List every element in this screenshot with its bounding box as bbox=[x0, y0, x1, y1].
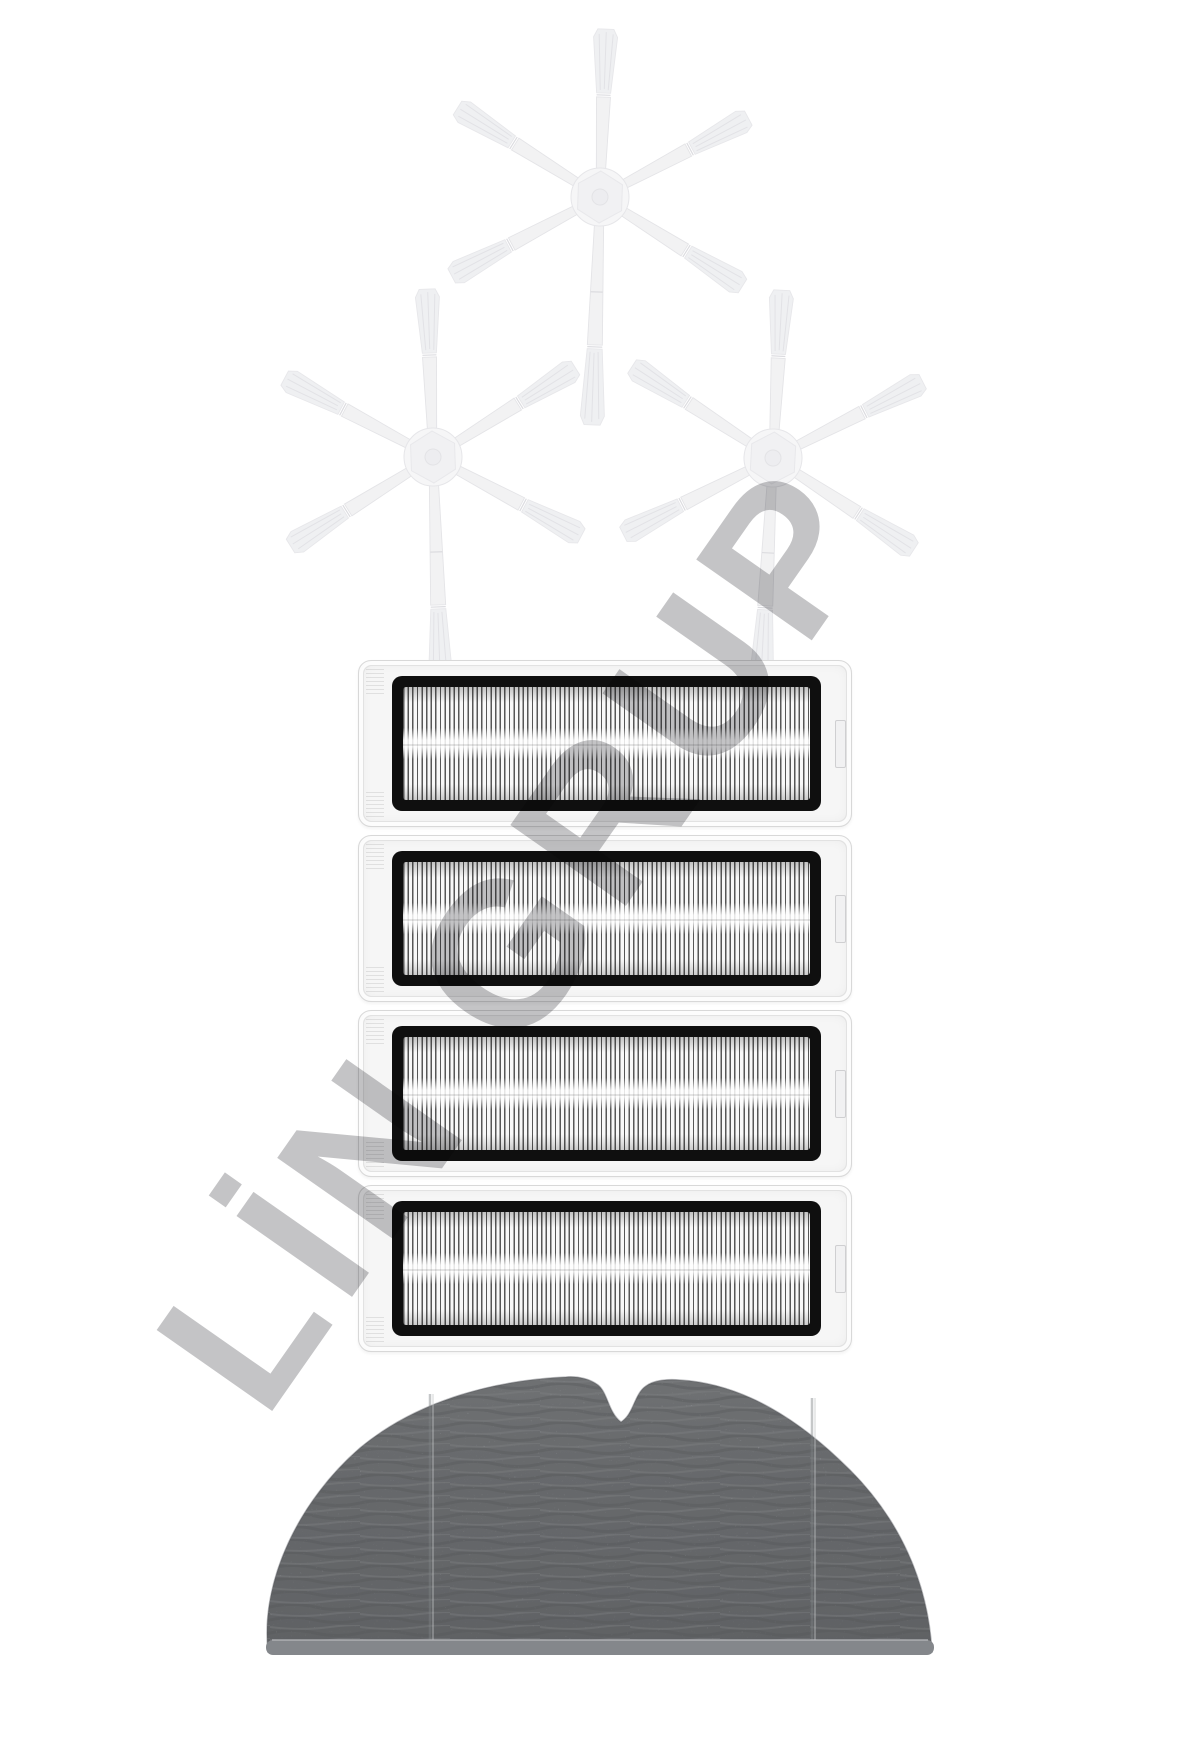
hepa-filter-2 bbox=[358, 835, 852, 1002]
filter-pleats bbox=[403, 687, 810, 800]
filter-pleats bbox=[403, 1212, 810, 1325]
filter-pleats bbox=[403, 1037, 810, 1150]
hepa-filter-3 bbox=[358, 1010, 852, 1177]
filter-black-frame bbox=[392, 676, 821, 811]
filter-black-frame bbox=[392, 1201, 821, 1336]
filter-ridge-top-left bbox=[366, 1194, 384, 1220]
filter-ridge-bottom-left bbox=[366, 967, 384, 993]
filter-clip-tab bbox=[835, 1070, 846, 1118]
filter-ridge-bottom-left bbox=[366, 792, 384, 818]
filter-ridge-bottom-left bbox=[366, 1142, 384, 1168]
pleat-midline bbox=[403, 1094, 810, 1096]
filter-black-frame bbox=[392, 851, 821, 986]
filter-pleats bbox=[403, 862, 810, 975]
filter-clip-tab bbox=[835, 720, 846, 768]
mop-body bbox=[266, 1377, 934, 1655]
mop-bottom-binding bbox=[266, 1640, 934, 1655]
pleat-midline bbox=[403, 919, 810, 921]
filter-clip-tab bbox=[835, 895, 846, 943]
filter-ridge-top-left bbox=[366, 844, 384, 870]
side-brush-3 bbox=[533, 218, 1013, 698]
filter-ridge-top-left bbox=[366, 669, 384, 695]
filter-ridge-top-left bbox=[366, 1019, 384, 1045]
hepa-filter-4 bbox=[358, 1185, 852, 1352]
pleat-midline bbox=[403, 744, 810, 746]
filter-clip-tab bbox=[835, 1245, 846, 1293]
filter-black-frame bbox=[392, 1026, 821, 1161]
pleat-midline bbox=[403, 1269, 810, 1271]
mop-pad bbox=[240, 1360, 960, 1670]
filter-ridge-bottom-left bbox=[366, 1317, 384, 1343]
hepa-filter-1 bbox=[358, 660, 852, 827]
product-photo: LİN GRUP bbox=[0, 0, 1200, 1740]
